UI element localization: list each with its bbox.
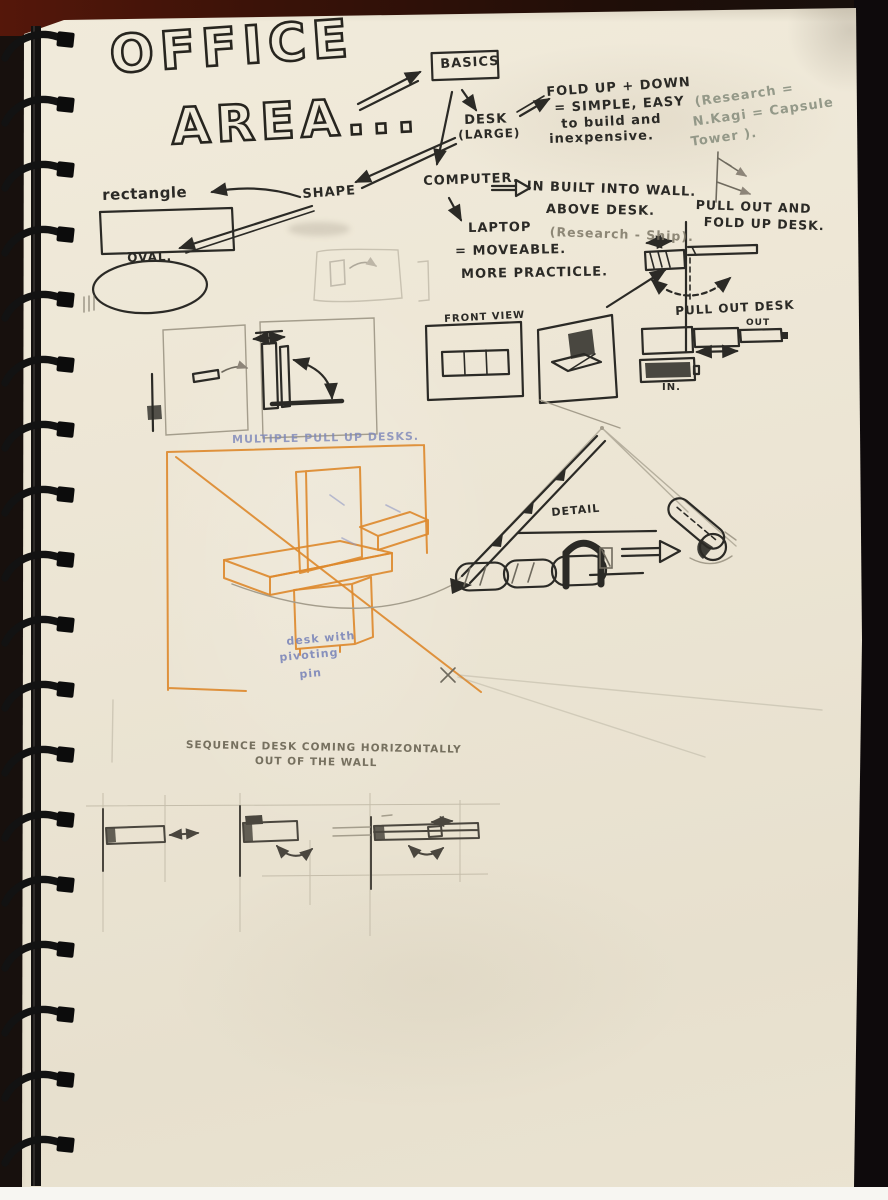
note-sequence-1: SEQUENCE DESK COMING HORIZONTALLY (186, 740, 462, 755)
note-pivot-1: desk with (286, 630, 356, 647)
note-in-label: IN. (662, 383, 681, 393)
note-pivot-3: pin (299, 667, 322, 680)
note-sequence-2: OUT OF THE WALL (255, 756, 378, 769)
node-desk-size: (LARGE) (458, 127, 521, 141)
note-wall-2: ABOVE DESK. (546, 203, 655, 218)
note-pull-out-sub: OUT (746, 319, 770, 328)
note-laptop-1: LAPTOP (468, 221, 532, 235)
page-title-line2: AREA... (170, 89, 422, 152)
note-research-3: Tower ). (690, 127, 758, 149)
node-basics: BASICS (440, 55, 500, 71)
node-computer: COMPUTER. (423, 172, 519, 188)
note-fold-4: inexpensive. (549, 129, 654, 146)
node-shape: SHAPE (302, 184, 356, 201)
note-pull-fold-1: PULL OUT AND (696, 199, 812, 216)
node-rectangle: rectangle (102, 185, 187, 203)
page-title-line1: OFFICE (108, 13, 355, 82)
note-front-view: FRONT VIEW (444, 311, 525, 325)
note-laptop-3: MORE PRACTICLE. (461, 265, 608, 281)
note-pull-out-desk: PULL OUT DESK (675, 299, 795, 317)
node-desk: DESK (464, 112, 508, 126)
note-laptop-2: = MOVEABLE. (455, 243, 566, 258)
handwriting-layer: OFFICE AREA... BASICS DESK (LARGE) FOLD … (0, 0, 888, 1200)
note-research-ship: (Research - Ship). (550, 226, 694, 244)
note-pull-fold-2: FOLD UP DESK. (704, 216, 825, 233)
photo-bottom-border (0, 1187, 888, 1200)
note-pivot-2: pivoting (279, 647, 339, 663)
note-detail: DETAIL (551, 503, 601, 518)
sketchbook-photo: OFFICE AREA... BASICS DESK (LARGE) FOLD … (0, 0, 888, 1200)
note-multiple-desks: MULTIPLE PULL UP DESKS. (232, 431, 419, 445)
note-wall-1: IN BUILT INTO WALL. (527, 180, 697, 199)
note-fold-2: = SIMPLE, EASY (554, 95, 685, 115)
node-oval: OVAL. (127, 250, 172, 264)
